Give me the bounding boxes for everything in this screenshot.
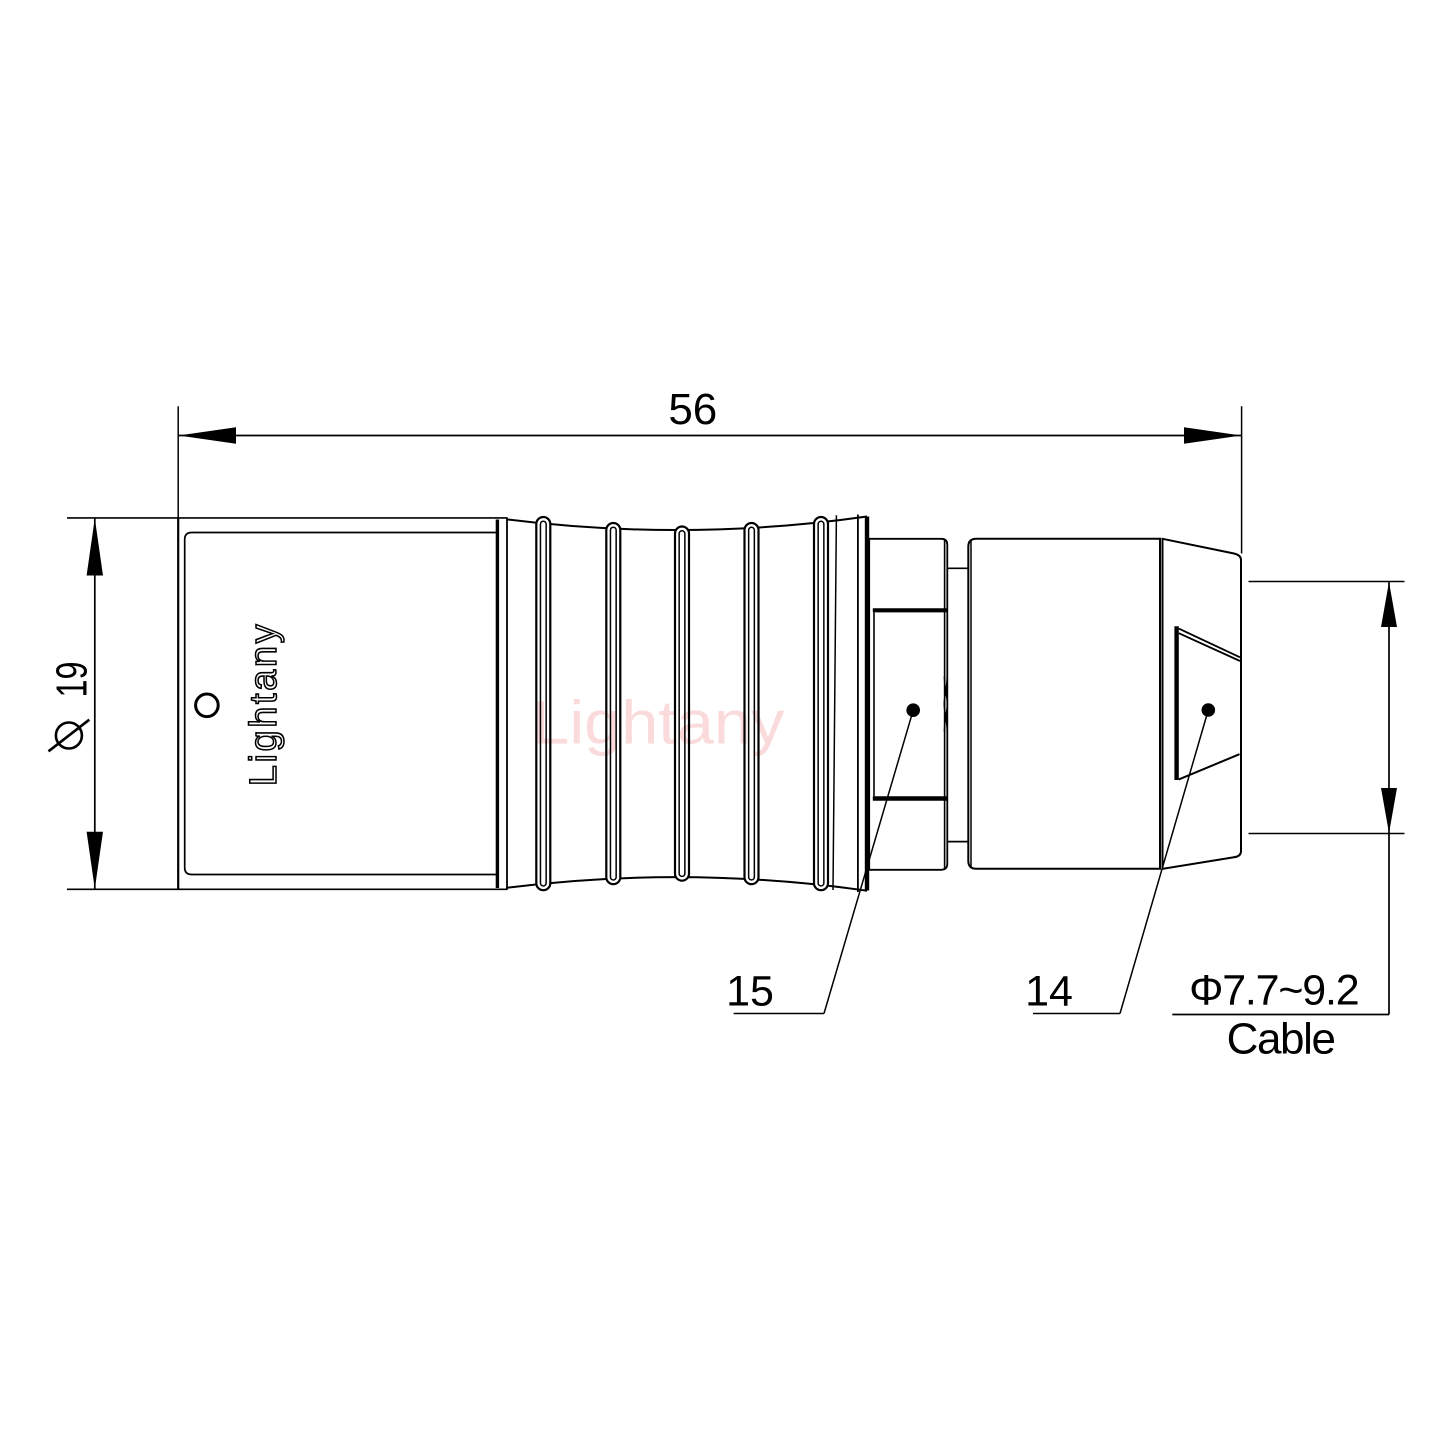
svg-text:Lightany: Lightany <box>243 622 285 786</box>
svg-text:Cable: Cable <box>1227 1015 1335 1064</box>
svg-text:14: 14 <box>1025 968 1073 1016</box>
svg-text:56: 56 <box>668 385 717 434</box>
svg-text:Lightany: Lightany <box>532 688 785 756</box>
svg-text:19: 19 <box>48 662 97 698</box>
svg-text:15: 15 <box>726 968 774 1016</box>
svg-text:Φ7.7~9.2: Φ7.7~9.2 <box>1189 967 1358 1015</box>
